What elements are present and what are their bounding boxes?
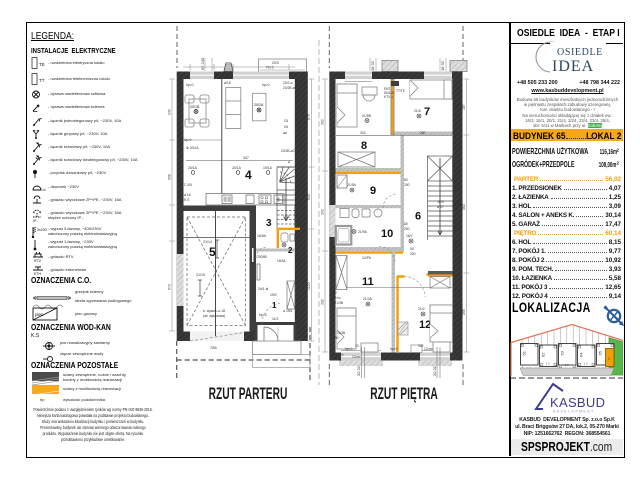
svg-text:20/2A: 20/2A bbox=[254, 103, 264, 107]
svg-text:16/1 ⊗: 16/1 ⊗ bbox=[258, 287, 269, 291]
svg-text:1120: 1120 bbox=[307, 282, 311, 290]
svg-text:hp=0: hp=0 bbox=[184, 138, 192, 142]
svg-text:OSIEDLE: OSIEDLE bbox=[557, 47, 603, 58]
svg-text:18 32: 18 32 bbox=[370, 60, 375, 71]
svg-text:12²m²: 12²m² bbox=[352, 355, 362, 359]
svg-text:62: 62 bbox=[541, 352, 546, 357]
svg-text:⌀ 16: ⌀ 16 bbox=[184, 193, 191, 197]
svg-text:C 4/5: C 4/5 bbox=[184, 183, 192, 187]
svg-text:80: 80 bbox=[404, 222, 408, 226]
svg-text:RZUT PARTERU: RZUT PARTERU bbox=[209, 385, 288, 403]
svg-text:302: 302 bbox=[321, 119, 325, 125]
svg-text:786: 786 bbox=[210, 345, 217, 350]
svg-text:302: 302 bbox=[360, 131, 366, 135]
svg-text:598: 598 bbox=[168, 174, 172, 180]
svg-text:19/8: 19/8 bbox=[283, 215, 290, 219]
svg-text:21/6: 21/6 bbox=[414, 109, 421, 113]
svg-text:KTV ⌀: KTV ⌀ bbox=[384, 95, 393, 99]
svg-text:12/P6: 12/P6 bbox=[362, 256, 371, 260]
svg-text:hp=0: hp=0 bbox=[336, 353, 344, 357]
svg-text:879: 879 bbox=[307, 114, 311, 120]
svg-text:⌀ 17: ⌀ 17 bbox=[437, 205, 444, 209]
svg-text:IDEA: IDEA bbox=[552, 58, 594, 75]
svg-text:1 2: 1 2 bbox=[565, 363, 570, 367]
svg-text:C6: C6 bbox=[284, 119, 288, 123]
svg-text:20/2B ⌀C: 20/2B ⌀C bbox=[283, 86, 298, 90]
svg-text:200: 200 bbox=[404, 183, 410, 187]
svg-text:21/19: 21/19 bbox=[196, 273, 205, 277]
svg-text:2: 2 bbox=[288, 246, 293, 255]
svg-text:RZUT PIĘTRA: RZUT PIĘTRA bbox=[370, 385, 438, 403]
svg-text:hp=0: hp=0 bbox=[345, 347, 353, 351]
svg-text:⌀ 15/1: ⌀ 15/1 bbox=[283, 309, 293, 313]
svg-text:187: 187 bbox=[462, 104, 466, 110]
svg-text:1 2: 1 2 bbox=[546, 362, 551, 366]
svg-text:92 240: 92 240 bbox=[200, 57, 205, 70]
svg-text:16/5: 16/5 bbox=[437, 200, 444, 204]
svg-text:9: 9 bbox=[370, 185, 376, 197]
svg-text:332: 332 bbox=[321, 299, 325, 305]
svg-text:20 32: 20 32 bbox=[432, 365, 437, 376]
svg-text:5: 5 bbox=[209, 245, 216, 259]
svg-text:7: 7 bbox=[424, 106, 430, 118]
svg-text:63: 63 bbox=[560, 350, 565, 355]
svg-text:21/5B: 21/5B bbox=[362, 114, 372, 118]
svg-text:287: 287 bbox=[420, 131, 426, 135]
svg-text:hp=0: hp=0 bbox=[262, 83, 270, 87]
svg-text:1k 21/3B: 1k 21/3B bbox=[330, 301, 344, 305]
svg-text:21/3A: 21/3A bbox=[363, 297, 373, 301]
svg-text:⌀: ⌀ bbox=[288, 160, 290, 164]
svg-text:hp=0: hp=0 bbox=[390, 347, 398, 351]
svg-text:1 2: 1 2 bbox=[584, 362, 589, 366]
svg-text:K.S: K.S bbox=[184, 198, 190, 202]
svg-text:16/5A: 16/5A bbox=[257, 234, 267, 238]
svg-text:20: 20 bbox=[355, 344, 359, 348]
svg-text:347: 347 bbox=[243, 156, 249, 160]
svg-text:21/9A: 21/9A bbox=[358, 230, 368, 234]
svg-text:⌀⌀: ⌀⌀ bbox=[283, 131, 287, 135]
svg-text:18 32: 18 32 bbox=[440, 60, 445, 71]
svg-text:20/2 ⌀: 20/2 ⌀ bbox=[283, 81, 292, 85]
svg-text:6: 6 bbox=[415, 211, 421, 223]
svg-text:20/3: 20/3 bbox=[272, 61, 279, 65]
svg-text:21/2: 21/2 bbox=[418, 307, 425, 311]
svg-text:240: 240 bbox=[168, 109, 172, 115]
svg-text:21/3+⌀: 21/3+⌀ bbox=[330, 296, 340, 300]
svg-text:462: 462 bbox=[462, 204, 466, 210]
svg-text:hp⌀ 21/3B: hp⌀ 21/3B bbox=[330, 331, 346, 335]
svg-text:(wł. wjazdowa): (wł. wjazdowa) bbox=[203, 314, 225, 318]
svg-text:20/2B ⌀C: 20/2B ⌀C bbox=[281, 149, 296, 153]
svg-text:200/80: 200/80 bbox=[257, 255, 267, 259]
svg-text:K5: K5 bbox=[284, 125, 288, 129]
svg-text:570: 570 bbox=[168, 284, 172, 290]
svg-text:200: 200 bbox=[410, 252, 416, 256]
svg-text:19/2: 19/2 bbox=[270, 293, 277, 297]
svg-text:620: 620 bbox=[307, 194, 311, 200]
svg-text:20/1B: 20/1B bbox=[190, 105, 200, 109]
svg-text:302: 302 bbox=[418, 344, 424, 348]
svg-text:21/14: 21/14 bbox=[203, 240, 212, 244]
svg-text:61: 61 bbox=[522, 350, 527, 355]
svg-text:⊗ 20/1A: ⊗ 20/1A bbox=[186, 146, 199, 150]
svg-text:4: 4 bbox=[245, 168, 252, 182]
svg-text:hp=0: hp=0 bbox=[186, 83, 194, 87]
svg-text:19/1A: 19/1A bbox=[263, 166, 273, 170]
svg-text:200: 200 bbox=[404, 227, 410, 231]
svg-text:PB 5: PB 5 bbox=[266, 66, 274, 70]
svg-text:10: 10 bbox=[381, 228, 393, 240]
svg-text:12²m²: 12²m² bbox=[424, 347, 434, 351]
svg-text:hp=C: hp=C bbox=[259, 313, 268, 317]
svg-text:KASBUD: KASBUD bbox=[550, 395, 605, 410]
svg-text:C 12: C 12 bbox=[330, 291, 337, 295]
svg-text:262: 262 bbox=[321, 209, 325, 215]
svg-text:16/7: 16/7 bbox=[406, 234, 413, 238]
svg-text:20 32: 20 32 bbox=[356, 365, 361, 376]
svg-text:20/1A: 20/1A bbox=[188, 166, 198, 170]
svg-text:8: 8 bbox=[361, 140, 367, 152]
svg-text:1: 1 bbox=[272, 301, 277, 310]
svg-text:64: 64 bbox=[579, 352, 584, 357]
svg-text:80: 80 bbox=[404, 178, 408, 182]
svg-text:11: 11 bbox=[362, 276, 374, 288]
svg-text:TT/TE: TT/TE bbox=[396, 89, 405, 93]
svg-text:20/1A: 20/1A bbox=[232, 166, 242, 170]
svg-text:b. wjazdu ⌀ 18: b. wjazdu ⌀ 18 bbox=[203, 309, 225, 313]
svg-text:12: 12 bbox=[419, 319, 431, 331]
svg-text:90: 90 bbox=[410, 247, 414, 251]
svg-text:21/3B: 21/3B bbox=[330, 336, 339, 340]
svg-text:⌀5,8: ⌀5,8 bbox=[224, 81, 231, 85]
svg-text:21/5A: 21/5A bbox=[347, 183, 357, 187]
svg-text:DEVELOPMENT: DEVELOPMENT bbox=[553, 410, 595, 414]
svg-text:11/2: 11/2 bbox=[272, 317, 278, 321]
svg-text:65: 65 bbox=[598, 350, 603, 355]
svg-text:16/3A: 16/3A bbox=[277, 259, 286, 263]
svg-text:3: 3 bbox=[266, 218, 272, 229]
svg-text:265: 265 bbox=[462, 309, 466, 315]
svg-text:2: 2 bbox=[608, 357, 610, 361]
